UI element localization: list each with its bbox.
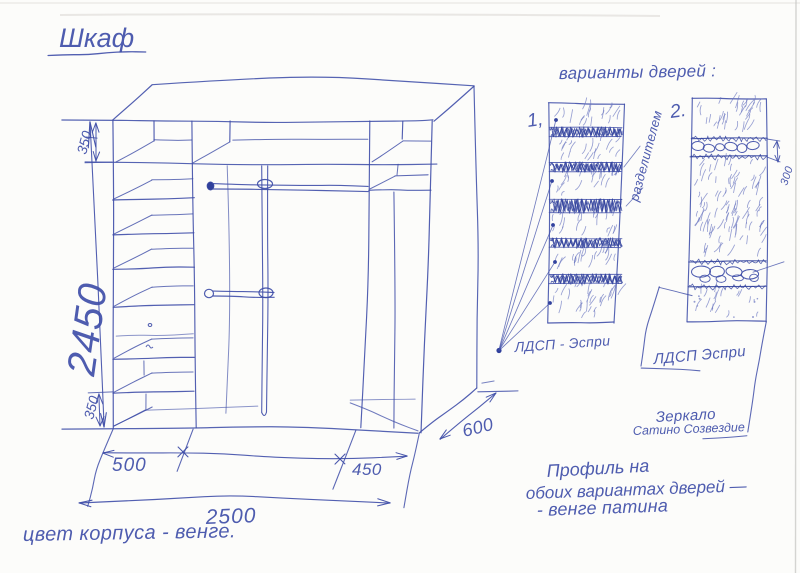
svg-text:Шкаф: Шкаф: [59, 23, 134, 53]
svg-text:2.: 2.: [668, 100, 688, 123]
svg-text:цвет корпуса - венге.: цвет корпуса - венге.: [23, 520, 236, 546]
svg-text:450: 450: [352, 460, 382, 479]
svg-text:варианты дверей :: варианты дверей :: [559, 61, 717, 83]
svg-text:1,: 1,: [526, 109, 545, 132]
svg-text:500: 500: [112, 455, 147, 476]
